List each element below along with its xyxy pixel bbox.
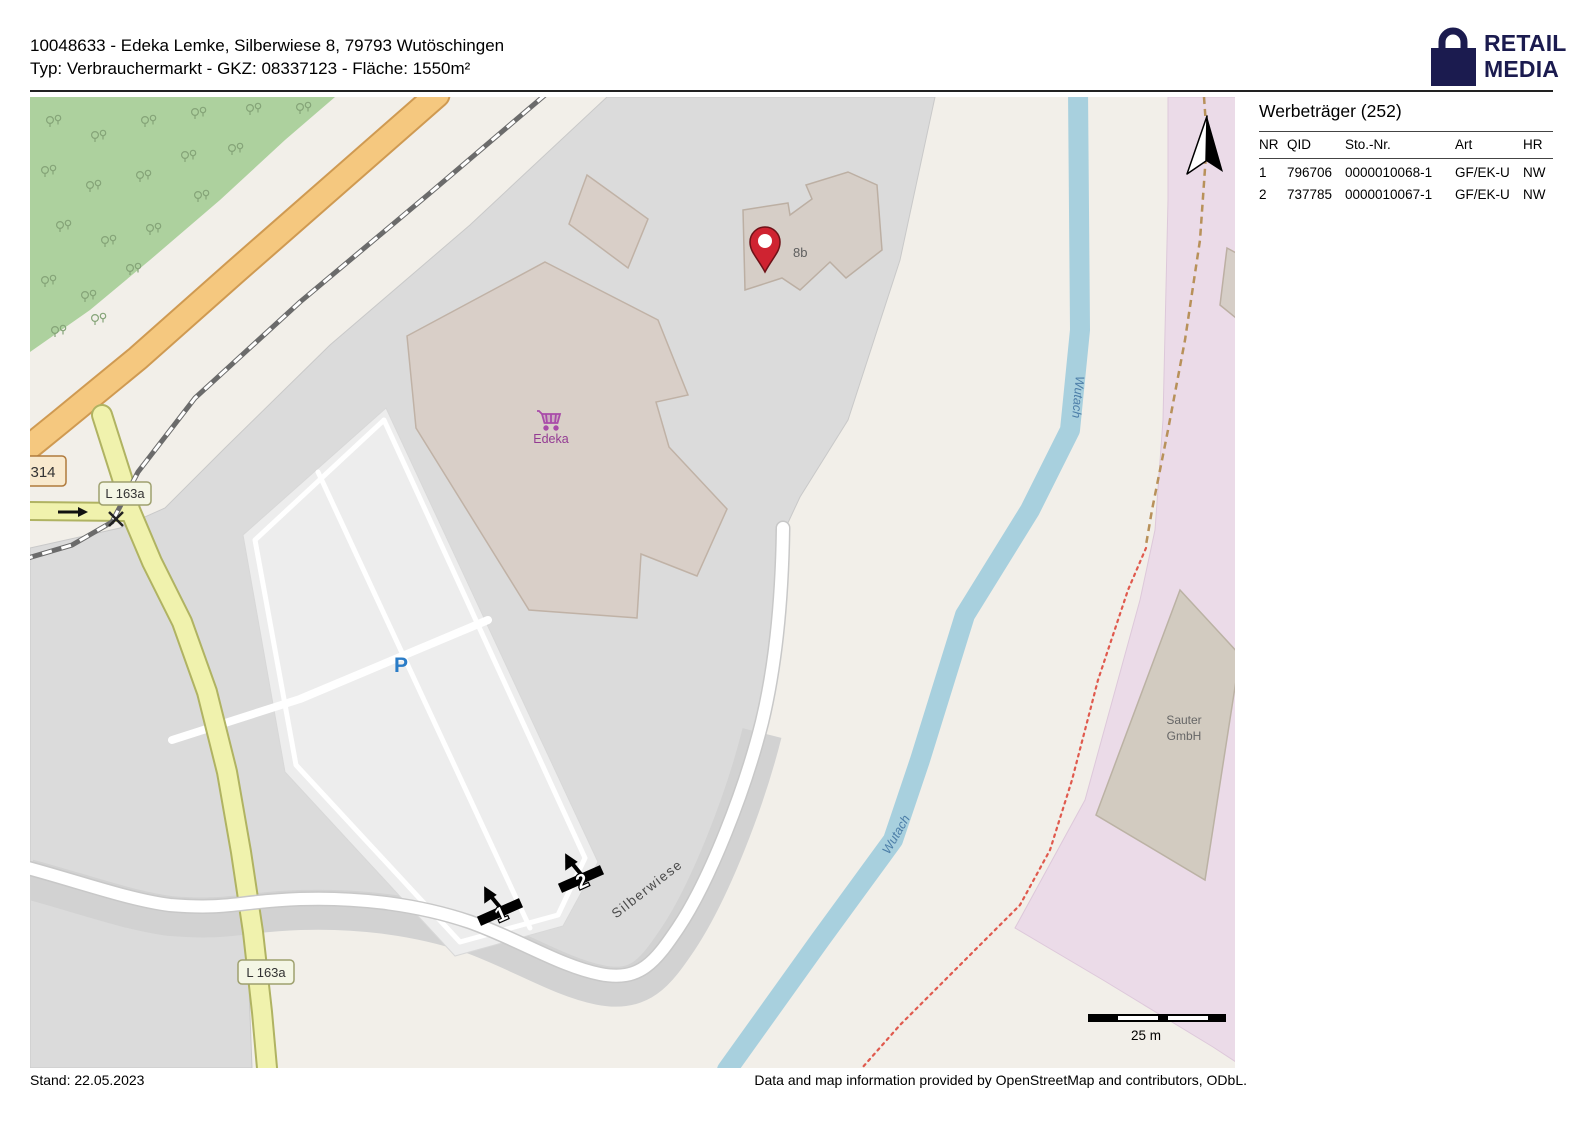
svg-text:L 163a: L 163a (105, 486, 145, 501)
parking-icon: P (394, 654, 408, 677)
shopping-bag-icon (1430, 25, 1478, 87)
cell-art: GF/EK-U (1455, 181, 1523, 203)
cell-nr: 1 (1259, 159, 1287, 182)
col-hr: HR (1523, 132, 1553, 159)
logo-text-retail: RETAIL (1484, 30, 1567, 56)
svg-text:L 163a: L 163a (246, 965, 286, 980)
cell-hr: NW (1523, 159, 1553, 182)
road-badge-314: 314 (30, 456, 66, 486)
svg-text:314: 314 (30, 464, 55, 481)
map-attribution: Data and map information provided by Ope… (30, 1072, 1247, 1088)
map-canvas: P (30, 97, 1235, 1068)
logo-text-media: MEDIA (1484, 56, 1567, 82)
road-badge-l163a-2: L 163a (238, 960, 294, 984)
cell-qid: 796706 (1287, 159, 1345, 182)
retail-media-logo: RETAIL MEDIA (1430, 25, 1567, 87)
werbetraeger-panel: Werbeträger (252) NR QID Sto.-Nr. Art HR… (1259, 101, 1554, 203)
osm-map: P (30, 97, 1235, 1068)
road-badge-l163a-1: L 163a (99, 482, 151, 505)
cell-hr: NW (1523, 181, 1553, 203)
table-header-row: NR QID Sto.-Nr. Art HR (1259, 132, 1553, 159)
page-title: 10048633 - Edeka Lemke, Silberwiese 8, 7… (30, 36, 504, 56)
col-qid: QID (1287, 132, 1345, 159)
col-art: Art (1455, 132, 1523, 159)
page-subtitle: Typ: Verbrauchermarkt - GKZ: 08337123 - … (30, 59, 470, 79)
house-number-label: 8b (793, 245, 807, 260)
header-divider (30, 90, 1553, 92)
table-row: 1 796706 0000010068-1 GF/EK-U NW (1259, 159, 1553, 182)
col-nr: NR (1259, 132, 1287, 159)
cell-art: GF/EK-U (1455, 159, 1523, 182)
werbetraeger-table: NR QID Sto.-Nr. Art HR 1 796706 00000100… (1259, 131, 1553, 203)
cell-stonr: 0000010067-1 (1345, 181, 1455, 203)
scale-label: 25 m (1131, 1028, 1161, 1043)
edeka-label: Edeka (533, 432, 568, 446)
cell-qid: 737785 (1287, 181, 1345, 203)
sauter-label-line1: Sauter (1166, 713, 1201, 727)
cell-nr: 2 (1259, 181, 1287, 203)
panel-title: Werbeträger (252) (1259, 101, 1554, 122)
col-stonr: Sto.-Nr. (1345, 132, 1455, 159)
cell-stonr: 0000010068-1 (1345, 159, 1455, 182)
table-row: 2 737785 0000010067-1 GF/EK-U NW (1259, 181, 1553, 203)
sauter-label-line2: GmbH (1167, 729, 1202, 743)
